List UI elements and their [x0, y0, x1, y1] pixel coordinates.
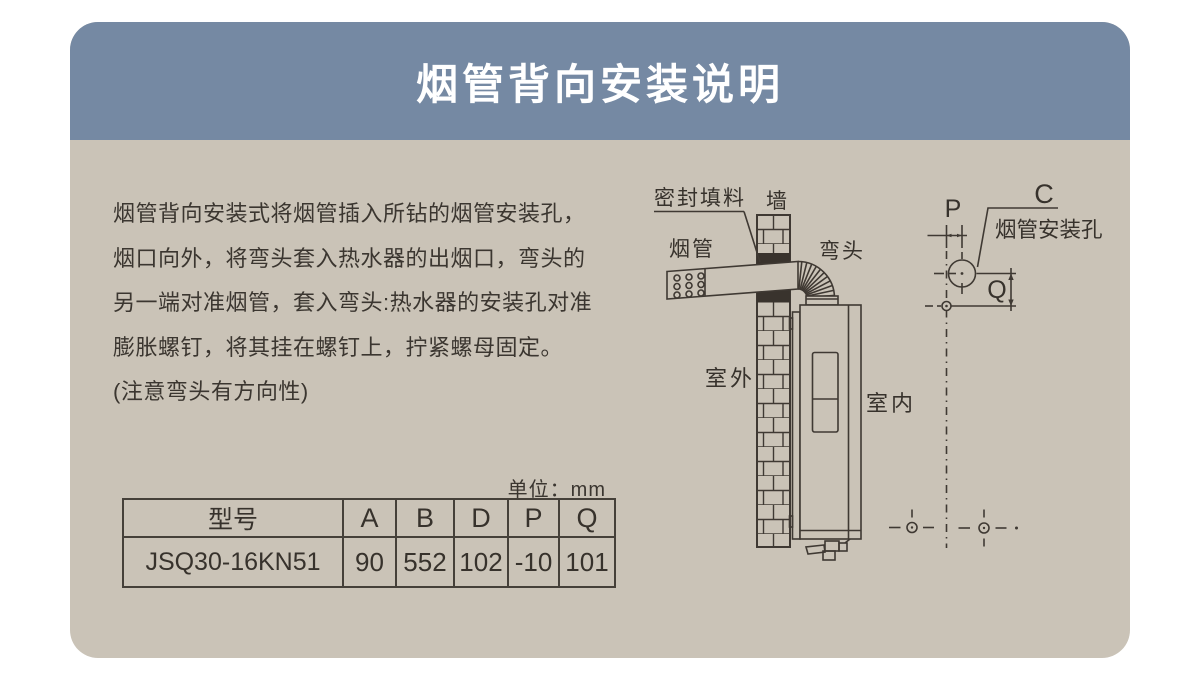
- instruction-line: 另一端对准烟管，套入弯头:热水器的安装孔对准: [113, 281, 653, 326]
- mounting-holes: [889, 510, 1018, 547]
- header-b: B: [396, 499, 454, 537]
- hole-detail: P C 烟管安装孔 Q: [925, 179, 1103, 548]
- label-install-hole: 烟管安装孔: [995, 218, 1103, 242]
- dim-c: C: [1034, 179, 1054, 209]
- instruction-line: 烟口向外，将弯头套入热水器的出烟口，弯头的: [113, 237, 653, 282]
- label-indoor: 室内: [866, 391, 916, 416]
- header-d: D: [454, 499, 508, 537]
- page-title: 烟管背向安装说明: [416, 51, 784, 112]
- label-wall: 墙: [766, 190, 789, 213]
- header-p: P: [508, 499, 559, 537]
- label-flue-pipe: 烟管: [669, 238, 715, 261]
- water-heater: [790, 305, 862, 560]
- spec-table: 型号 A B D P Q JSQ30-16KN51 90 552 102 -10…: [122, 498, 616, 588]
- cell-b: 552: [396, 537, 454, 587]
- spec-table-header-row: 型号 A B D P Q: [123, 499, 615, 537]
- cell-q: 101: [559, 537, 615, 587]
- instruction-line: (注意弯头有方向性): [113, 370, 653, 415]
- label-sealing: 密封填料: [654, 187, 746, 210]
- header-a: A: [343, 499, 396, 537]
- label-outdoor: 室外: [705, 366, 755, 391]
- spec-table-data-row: JSQ30-16KN51 90 552 102 -10 101: [123, 537, 615, 587]
- water-valves: [806, 539, 850, 560]
- header-q: Q: [559, 499, 615, 537]
- installation-diagram: 密封填料 墙 烟管 弯头 室外 室内 P: [630, 150, 1130, 640]
- cell-d: 102: [454, 537, 508, 587]
- installation-instructions: 烟管背向安装式将烟管插入所钻的烟管安装孔， 烟口向外，将弯头套入热水器的出烟口，…: [113, 192, 653, 415]
- card-body: 烟管背向安装式将烟管插入所钻的烟管安装孔， 烟口向外，将弯头套入热水器的出烟口，…: [70, 140, 1130, 658]
- label-elbow: 弯头: [819, 240, 865, 263]
- cell-a: 90: [343, 537, 396, 587]
- instruction-line: 膨胀螺钉，将其挂在螺钉上，拧紧螺母固定。: [113, 326, 653, 371]
- header-model: 型号: [123, 499, 343, 537]
- cell-p: -10: [508, 537, 559, 587]
- elbow: [798, 262, 838, 306]
- dim-p: P: [945, 195, 962, 223]
- cell-model: JSQ30-16KN51: [123, 537, 343, 587]
- dim-q: Q: [987, 276, 1006, 304]
- title-banner: 烟管背向安装说明: [70, 22, 1130, 140]
- instruction-line: 烟管背向安装式将烟管插入所钻的烟管安装孔，: [113, 192, 653, 237]
- instruction-card: 烟管背向安装说明 烟管背向安装式将烟管插入所钻的烟管安装孔， 烟口向外，将弯头套…: [70, 22, 1130, 658]
